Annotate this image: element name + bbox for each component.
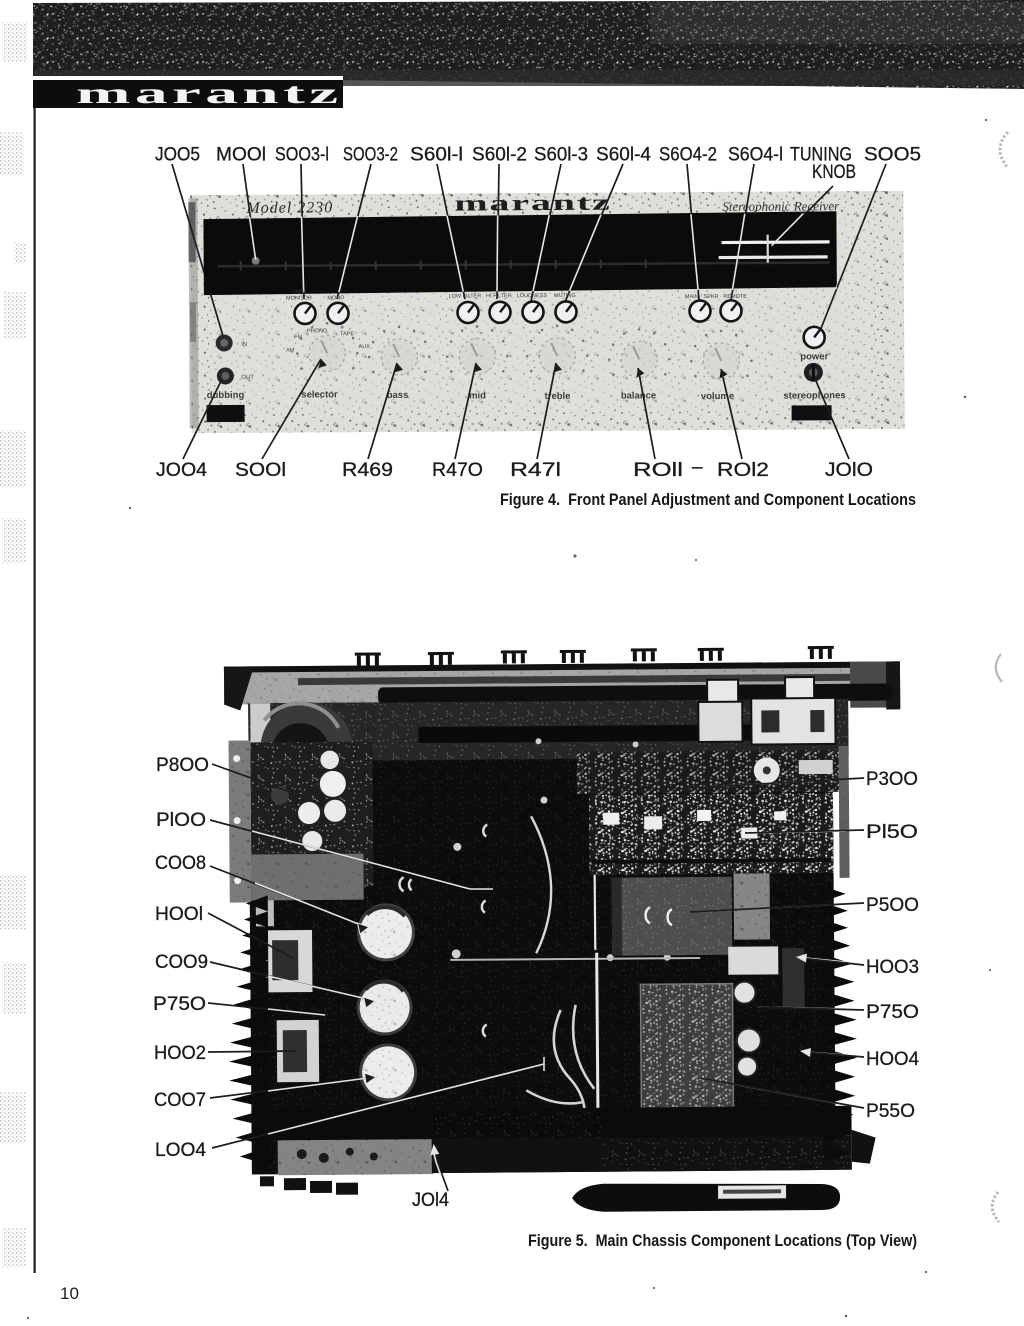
- svg-text:ROll: ROll: [633, 460, 683, 481]
- svg-text:PlOO: PlOO: [156, 810, 206, 831]
- svg-text:P75O: P75O: [153, 994, 206, 1015]
- svg-text:KNOB: KNOB: [812, 162, 856, 183]
- svg-text:Figure 5. Main Chassis Compon: Figure 5. Main Chassis Component Locatio…: [528, 1231, 917, 1250]
- svg-text:bass: bass: [387, 390, 409, 401]
- svg-text:–: –: [692, 457, 703, 478]
- svg-text:S6O4-l: S6O4-l: [728, 145, 783, 166]
- svg-text:P55O: P55O: [866, 1101, 915, 1122]
- svg-text:P5OO: P5OO: [866, 895, 919, 916]
- svg-text:R469: R469: [342, 460, 393, 481]
- svg-text:Pl5O: Pl5O: [866, 822, 918, 843]
- svg-text:marantz: marantz: [454, 190, 611, 215]
- svg-text:OUT: OUT: [241, 375, 254, 381]
- svg-text:mid: mid: [469, 390, 486, 401]
- svg-text:marantz: marantz: [76, 77, 343, 110]
- svg-text:HOO2: HOO2: [154, 1043, 206, 1064]
- svg-text:AUX: AUX: [359, 344, 371, 350]
- svg-text:SOO5: SOO5: [864, 145, 921, 166]
- svg-text:selector: selector: [301, 389, 338, 400]
- svg-text:Figure 4. Front Panel Adjustm: Figure 4. Front Panel Adjustment and Com…: [500, 490, 916, 509]
- svg-text:AM: AM: [286, 348, 295, 354]
- svg-text:balance: balance: [621, 390, 656, 401]
- svg-text:MONITOR: MONITOR: [286, 295, 312, 301]
- svg-text:S60l-3: S60l-3: [534, 145, 588, 166]
- svg-text:power: power: [800, 351, 828, 362]
- svg-text:P3OO: P3OO: [866, 769, 918, 790]
- svg-text:COO7: COO7: [154, 1090, 206, 1111]
- svg-text:10: 10: [60, 1284, 79, 1303]
- svg-text:S60l-l: S60l-l: [410, 145, 463, 166]
- svg-text:MAIN · SPKR · REMOTE: MAIN · SPKR · REMOTE: [685, 294, 747, 300]
- svg-text:COO9: COO9: [155, 952, 208, 973]
- svg-text:SOO3-l: SOO3-l: [275, 145, 329, 166]
- svg-text:COO8: COO8: [155, 853, 206, 874]
- svg-text:S6O4-2: S6O4-2: [659, 145, 717, 166]
- svg-text:JOl4: JOl4: [412, 1190, 449, 1211]
- svg-text:Model 2230: Model 2230: [245, 199, 333, 217]
- svg-text:SOOl: SOOl: [235, 460, 286, 481]
- svg-text:JOlO: JOlO: [825, 460, 873, 481]
- svg-text:MONO: MONO: [327, 295, 345, 301]
- svg-text:SOO3-2: SOO3-2: [343, 145, 398, 166]
- svg-text:P75O: P75O: [866, 1002, 919, 1023]
- svg-text:LOW FILTER: LOW FILTER: [449, 293, 482, 299]
- svg-text:LOO4: LOO4: [155, 1140, 206, 1161]
- svg-text:HOO3: HOO3: [866, 957, 919, 978]
- svg-text:IN: IN: [241, 342, 247, 348]
- svg-text:S60l-4: S60l-4: [596, 145, 651, 166]
- svg-text:LOUDNESS: LOUDNESS: [517, 293, 548, 299]
- svg-text:MOOl: MOOl: [216, 145, 266, 166]
- svg-text:JOO4: JOO4: [156, 460, 207, 481]
- svg-text:Stereophonic Receiver: Stereophonic Receiver: [722, 198, 840, 214]
- svg-text:S60l-2: S60l-2: [472, 145, 527, 166]
- svg-text:MUTING: MUTING: [554, 293, 576, 299]
- svg-text:stereophones: stereophones: [783, 390, 845, 401]
- svg-text:HOOl: HOOl: [155, 904, 203, 925]
- svg-text:ROl2: ROl2: [717, 460, 769, 481]
- svg-text:R47l: R47l: [510, 460, 561, 481]
- svg-text:HOO4: HOO4: [866, 1049, 919, 1070]
- svg-text:R47O: R47O: [432, 460, 483, 481]
- svg-text:TAPE: TAPE: [340, 331, 354, 337]
- svg-text:PHONO: PHONO: [307, 328, 328, 334]
- svg-text:JOO5: JOO5: [155, 145, 200, 166]
- svg-text:P8OO: P8OO: [156, 755, 209, 776]
- svg-text:HI FILTER: HI FILTER: [486, 293, 512, 299]
